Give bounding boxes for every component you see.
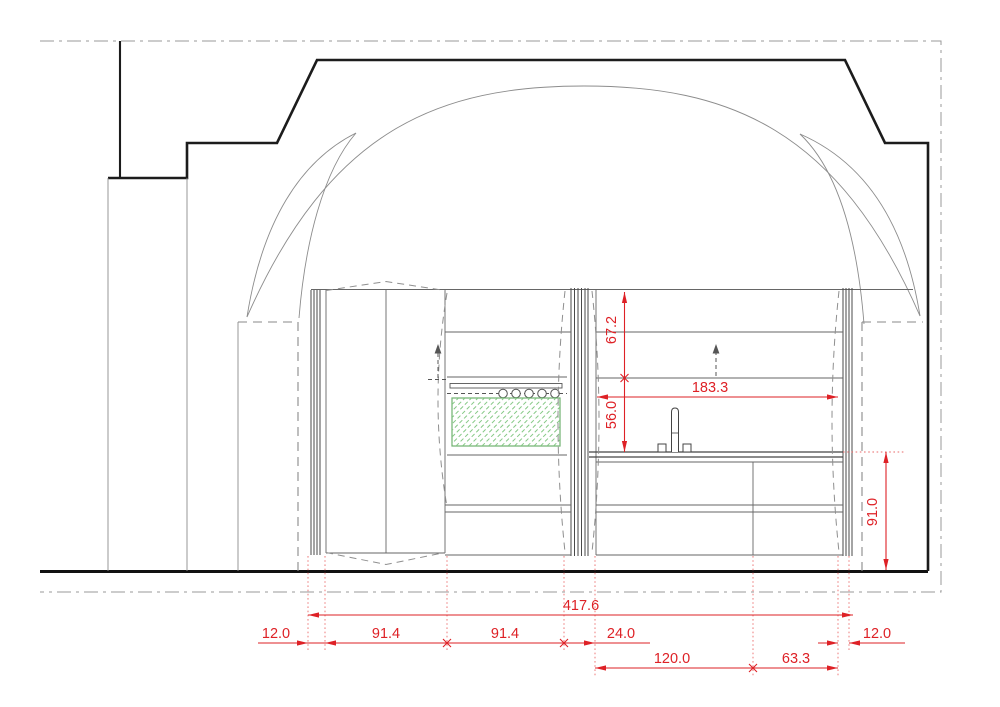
knob <box>525 389 534 398</box>
dim-worktop-clear-width: 183.3 <box>597 380 838 400</box>
main-arch <box>247 86 920 317</box>
right-pier <box>862 322 923 571</box>
dim-label-67-2: 67.2 <box>604 316 620 344</box>
oven-cabinet <box>404 332 654 555</box>
elevation-drawing: 67.2 56.0 183.3 91.0 417.6 12.0 91.4 <box>0 0 1000 707</box>
dim-label-24-0: 24.0 <box>607 626 635 642</box>
dim-label-120-0: 120.0 <box>654 651 690 667</box>
up-arrow-icon <box>713 344 720 354</box>
faucet <box>658 408 691 452</box>
knob <box>538 389 547 398</box>
dim-shelf-and-backsplash-heights: 67.2 56.0 <box>604 292 629 452</box>
dim-label-417-6: 417.6 <box>563 598 599 614</box>
oven-handle <box>450 384 562 389</box>
faucet-handle-left <box>658 444 666 452</box>
base-cabinets <box>596 462 843 555</box>
hob-knobs <box>499 389 560 398</box>
dim-label-56-0: 56.0 <box>604 401 620 429</box>
right-rib-inner <box>800 134 864 324</box>
tall-cabinet-door-swing-bottom <box>326 553 445 565</box>
elevation-drawing-page: 67.2 56.0 183.3 91.0 417.6 12.0 91.4 <box>0 0 1000 707</box>
dim-label-12-0-left: 12.0 <box>262 626 290 642</box>
section-boundary <box>40 41 941 592</box>
dim-label-183-3: 183.3 <box>692 380 728 396</box>
vault-arches <box>247 86 920 324</box>
dim-label-91-0: 91.0 <box>865 498 881 526</box>
boundary-line <box>40 41 941 592</box>
opening-direction-arrows <box>428 344 719 380</box>
left-pier <box>238 322 298 571</box>
dim-label-12-0-right: 12.0 <box>863 626 891 642</box>
sink-run <box>589 290 843 555</box>
dim-label-63-3: 63.3 <box>782 651 810 667</box>
faucet-handle-right <box>683 444 691 452</box>
extension-lines <box>308 556 849 676</box>
right-end-panel <box>843 288 852 556</box>
countertop <box>589 452 843 457</box>
hatch-line <box>560 398 608 446</box>
dim-label-91-4-oven: 91.4 <box>491 626 519 642</box>
center-partition-panel <box>571 288 588 556</box>
tall-cabinet <box>326 282 445 565</box>
dim-row-1: 12.0 91.4 91.4 24.0 12.0 <box>258 626 905 647</box>
knob <box>499 389 508 398</box>
dim-row-2: 120.0 63.3 <box>595 651 838 672</box>
left-end-panel <box>311 290 320 555</box>
knob <box>512 389 521 398</box>
hatch-line <box>411 398 459 446</box>
dim-label-91-4-tall: 91.4 <box>372 626 400 642</box>
building-shell <box>108 41 928 571</box>
dim-overall-width: 417.6 <box>308 598 853 618</box>
